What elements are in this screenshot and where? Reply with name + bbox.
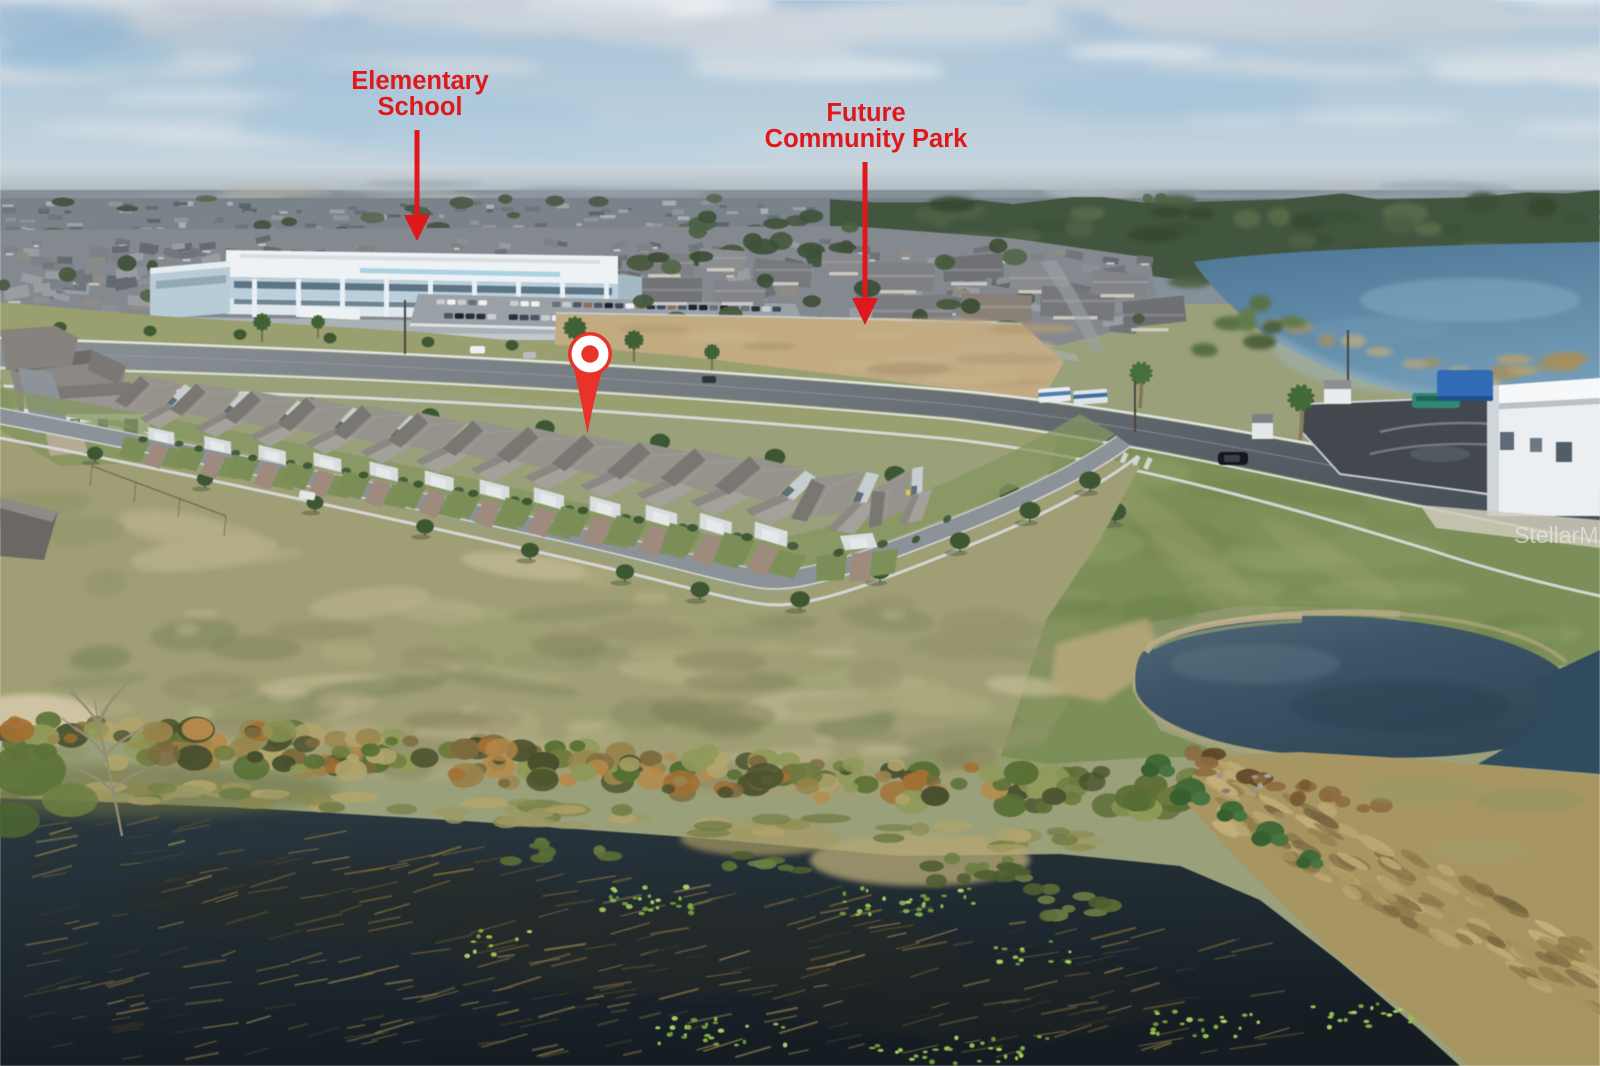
svg-text:StellarMLS: StellarMLS (1514, 522, 1600, 548)
svg-text:Future: Future (826, 99, 905, 127)
svg-text:School: School (377, 93, 462, 121)
svg-text:Community Park: Community Park (765, 125, 968, 153)
svg-text:Elementary: Elementary (351, 67, 489, 95)
